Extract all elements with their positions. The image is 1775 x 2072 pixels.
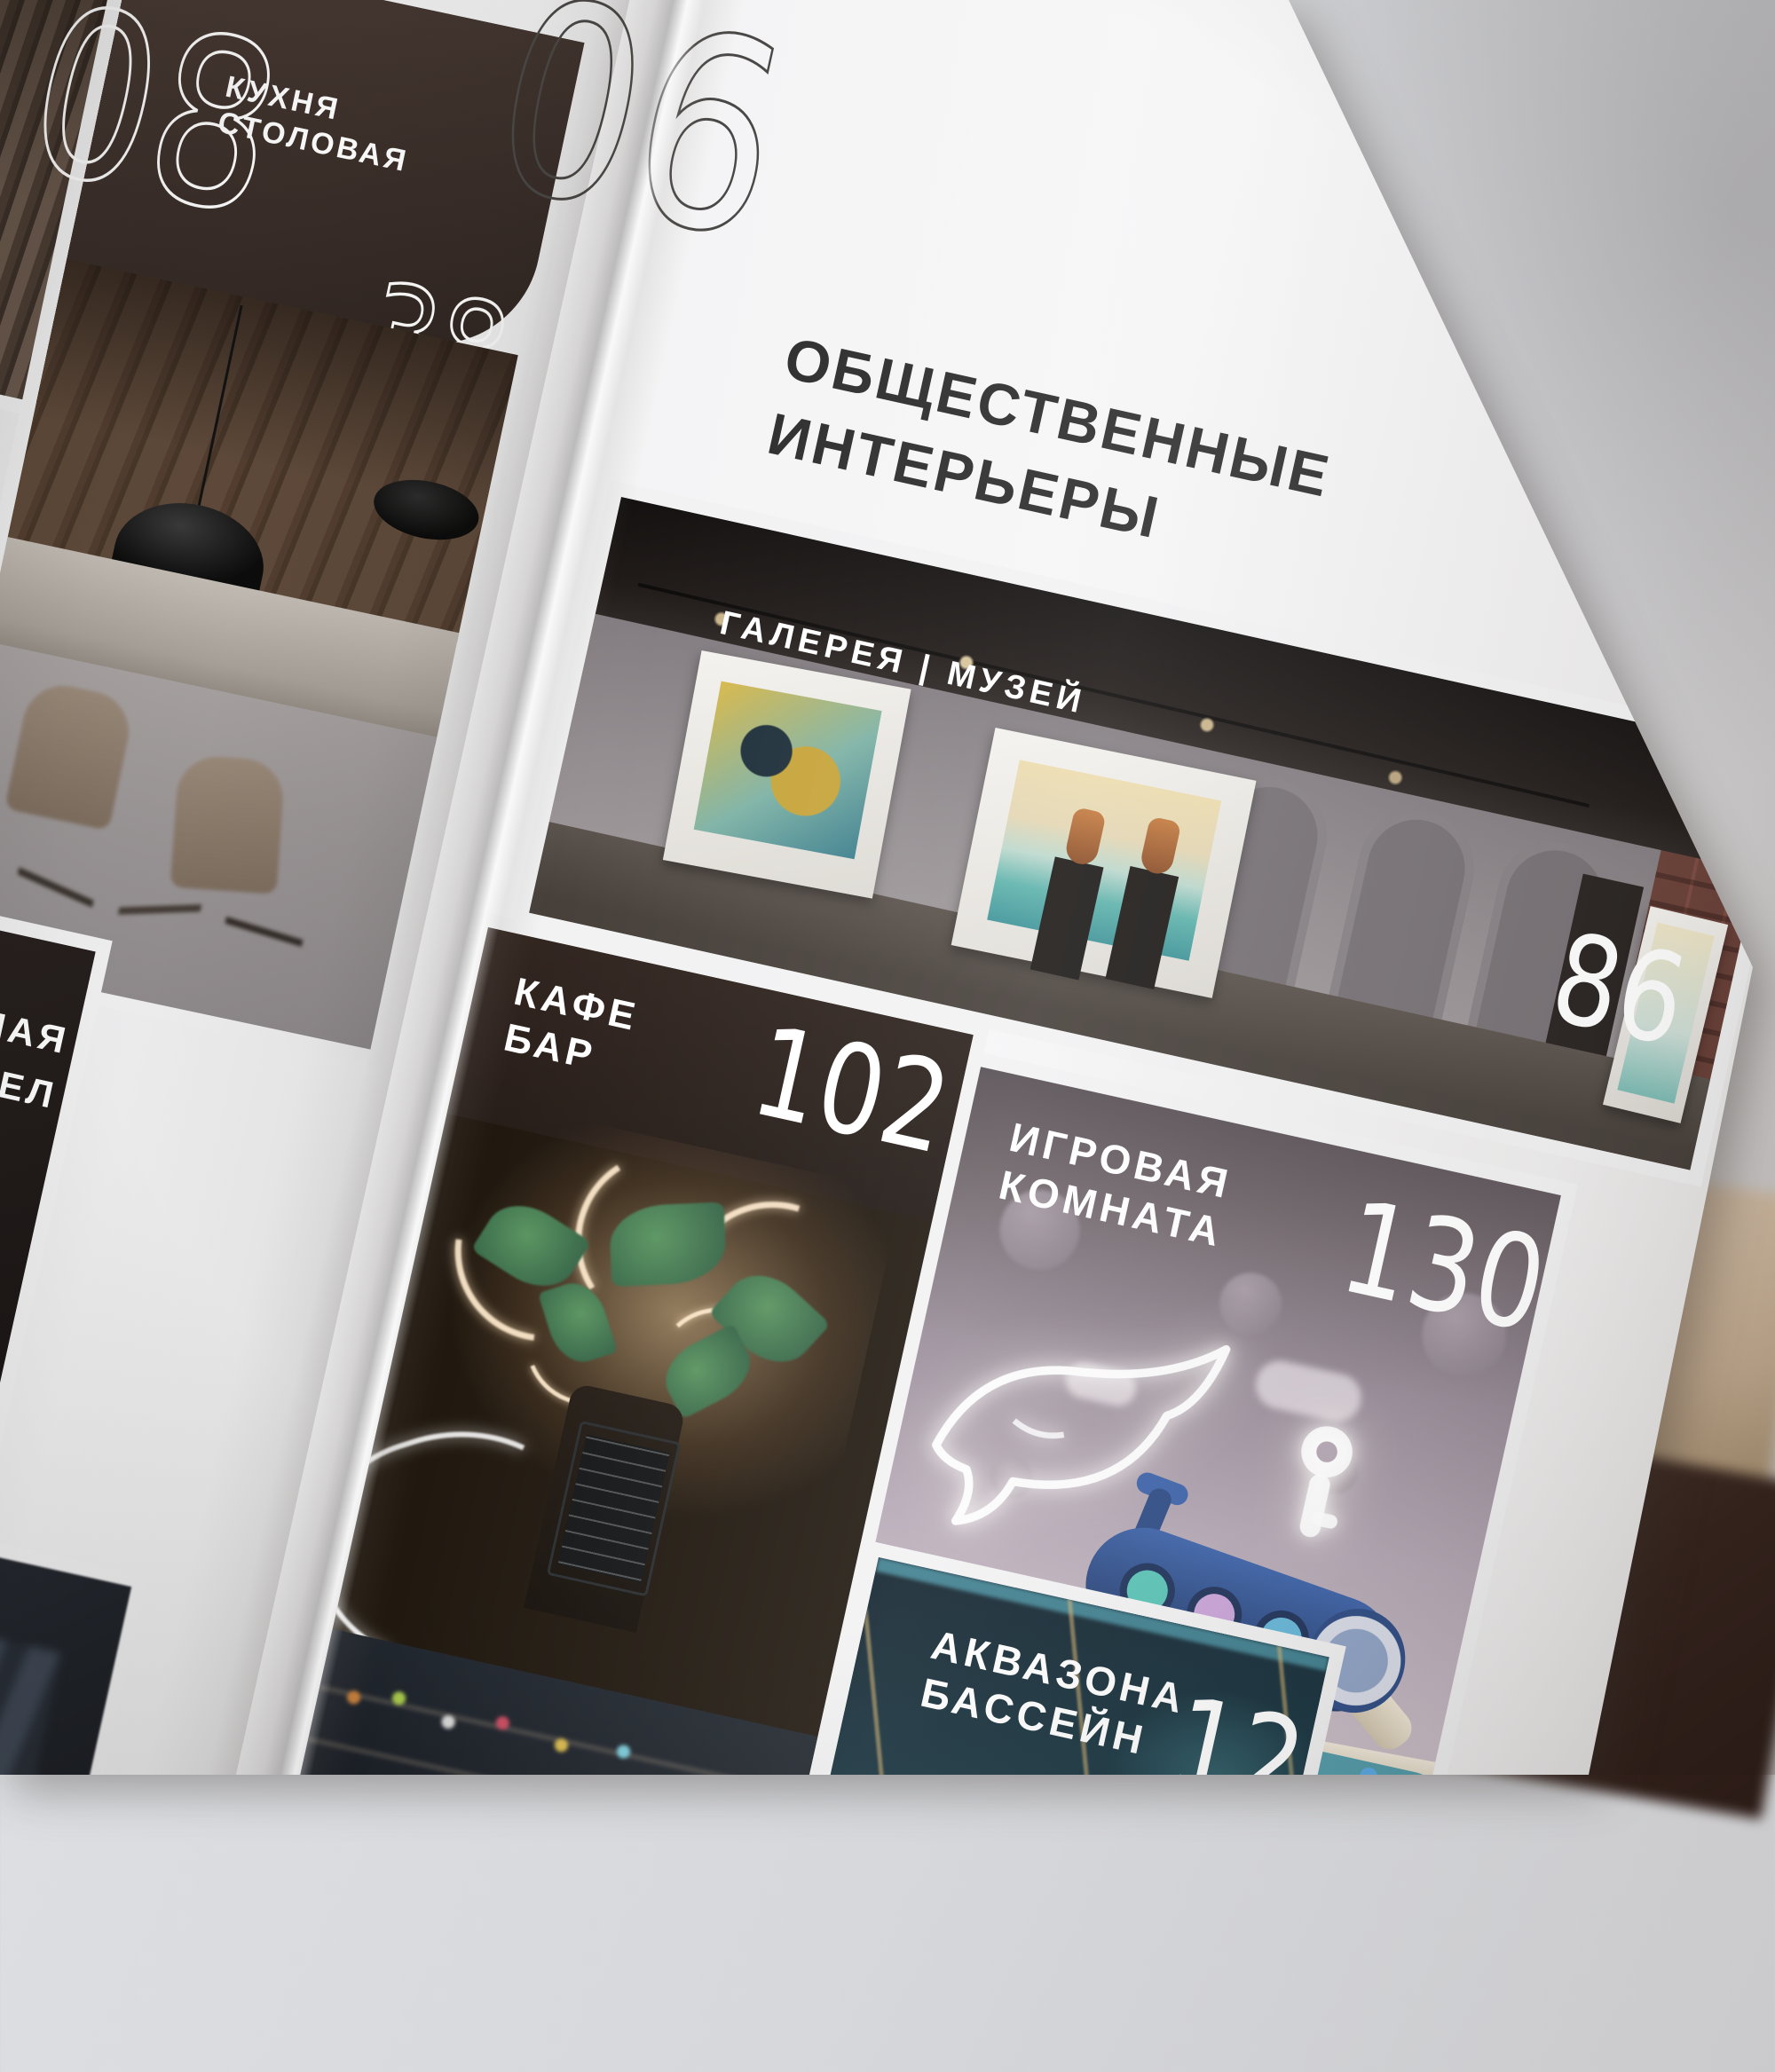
register-screen-glow [383, 1834, 500, 1918]
playroom-page-number: 130 [1331, 1183, 1561, 1361]
section-number: 06 [475, 0, 864, 294]
gallery-page-number: 86 [1542, 916, 1724, 1071]
open-spread-wrapper: КУХНЯ СТОЛОВАЯ 38 08 06 [0, 0, 1775, 1775]
left-bottom-photo [0, 1491, 131, 2072]
bathroom-label-fragment2: ЗЕЛ [0, 1058, 60, 1117]
open-catalog-spread: КУХНЯ СТОЛОВАЯ 38 08 06 [0, 0, 1775, 1775]
bathroom-label-fragment1: НАЯ [0, 1001, 73, 1061]
photo-blur-detail [0, 1611, 62, 1930]
seascape-painting [987, 760, 1221, 961]
aqua-page-number-partial: 12 [1161, 1681, 1329, 1836]
bottle-shelf [308, 1638, 816, 1849]
cafe-bar-tile: КАФЕ БАР 102 [267, 927, 974, 2031]
left-top-page-number: 08 [12, 0, 349, 262]
neon-key-shape [1254, 1407, 1382, 1576]
neon-whale-shape [903, 1288, 1259, 1580]
bathroom-tile-label-fragments: НАЯ ЗЕЛ [0, 995, 75, 1123]
abstract-painting [694, 681, 882, 860]
catalog-photo-scene: КУХНЯ СТОЛОВАЯ 38 08 06 [0, 0, 1775, 1775]
gallery-display-panel [663, 650, 911, 899]
counter-object [325, 1792, 384, 1839]
